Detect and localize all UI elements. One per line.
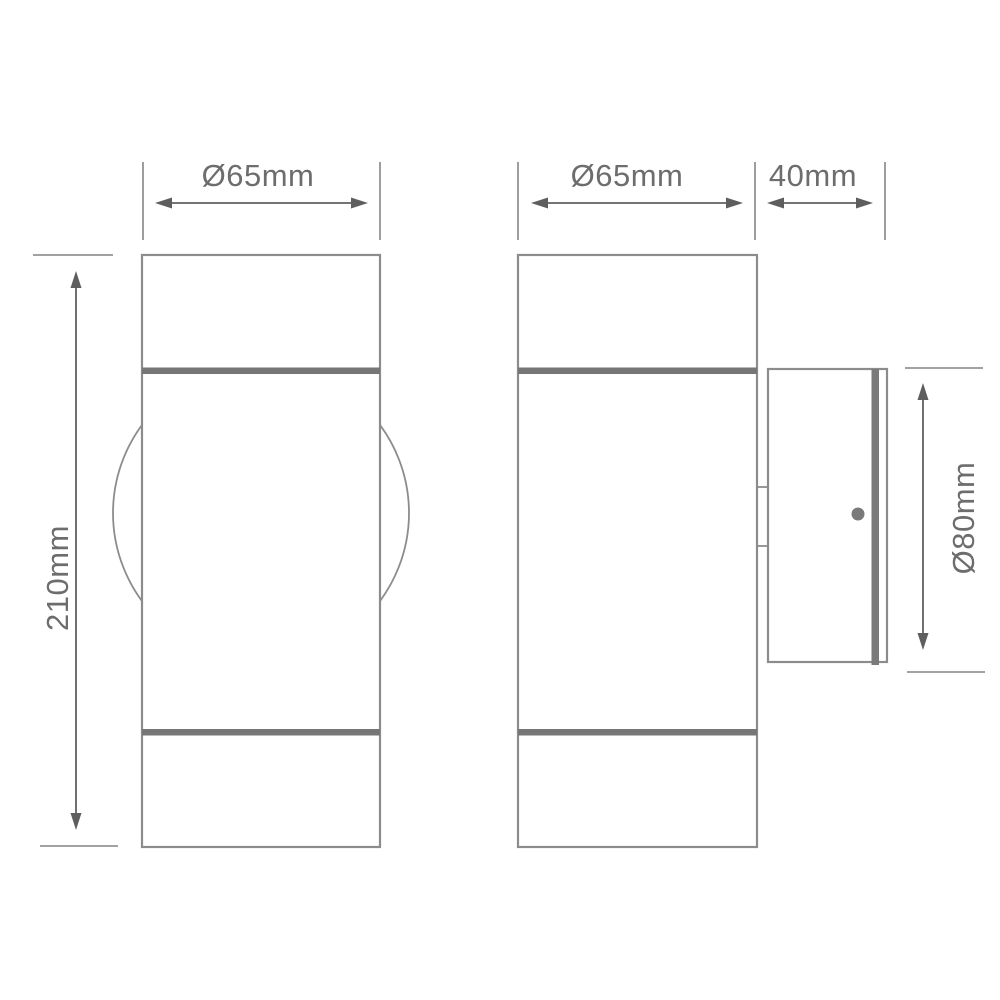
arrow-left-icon [767, 198, 784, 209]
arrow-right-icon [856, 198, 873, 209]
side-top-trim-band [518, 368, 757, 375]
dim-label-front-diameter: Ø65mm [202, 158, 315, 193]
front-bottom-trim-band [142, 729, 380, 736]
arrow-right-icon [351, 198, 368, 209]
dim-bracket-depth: 40mm [767, 158, 885, 240]
side-view [518, 255, 887, 847]
dim-label-side-diameter: Ø65mm [571, 158, 684, 193]
drawing-canvas: Ø65mm 210mm Ø65mm 40mm [0, 0, 1000, 1000]
dim-label-backplate-diameter: Ø80mm [946, 462, 981, 575]
arrow-left-icon [531, 198, 548, 209]
dim-backplate-diameter: Ø80mm [905, 368, 985, 672]
side-bottom-trim-band [518, 729, 757, 736]
dim-front-diameter: Ø65mm [143, 158, 380, 240]
arrow-down-icon [918, 633, 929, 650]
arrow-down-icon [71, 813, 82, 830]
front-body-outline [142, 255, 380, 847]
front-top-trim-band [142, 368, 380, 375]
dim-label-front-height: 210mm [40, 525, 75, 631]
arrow-right-icon [726, 198, 743, 209]
dim-front-height: 210mm [33, 255, 118, 846]
fixing-screw-dot [852, 508, 865, 521]
dimension-drawing: Ø65mm 210mm Ø65mm 40mm [0, 0, 1000, 1000]
side-body-outline [518, 255, 757, 847]
backplate-side-outline [768, 369, 887, 662]
arrow-up-icon [918, 383, 929, 400]
front-view [113, 255, 409, 847]
dim-label-bracket-depth: 40mm [769, 158, 857, 193]
arrow-left-icon [155, 198, 172, 209]
mount-arm-stub [757, 487, 768, 546]
dim-side-diameter: Ø65mm [518, 158, 755, 240]
backplate-stripe [872, 369, 880, 665]
arrow-up-icon [71, 271, 82, 288]
